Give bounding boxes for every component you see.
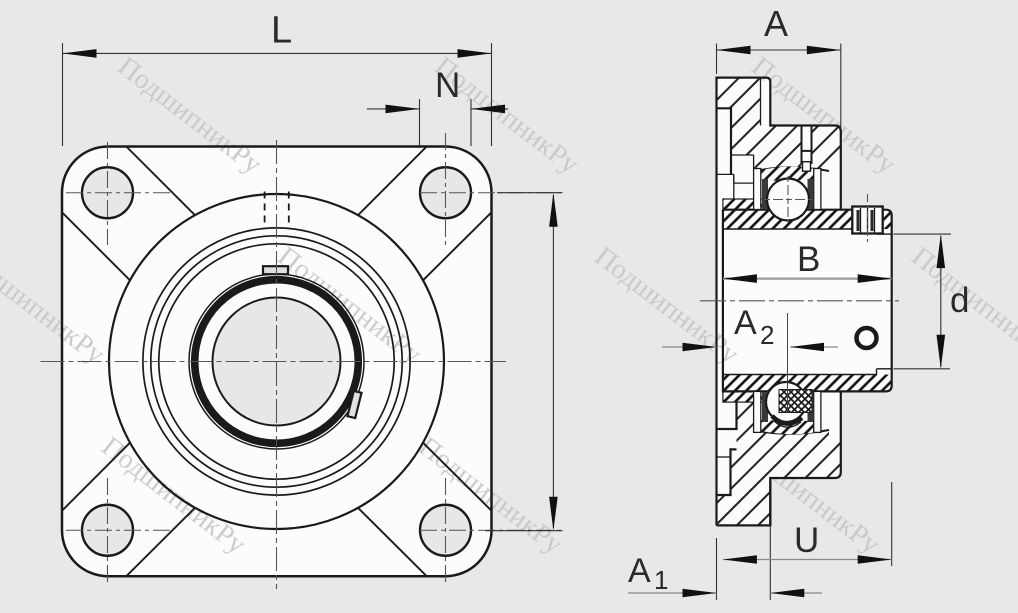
svg-text:A: A [764,3,788,44]
svg-text:B: B [797,240,820,279]
svg-text:L: L [271,10,292,52]
svg-text:d: d [950,281,969,320]
svg-text:U: U [794,521,819,560]
svg-text:N: N [435,66,460,105]
svg-text:A: A [628,552,651,590]
svg-text:1: 1 [654,565,668,595]
svg-text:A: A [734,304,757,342]
svg-text:2: 2 [760,320,774,350]
